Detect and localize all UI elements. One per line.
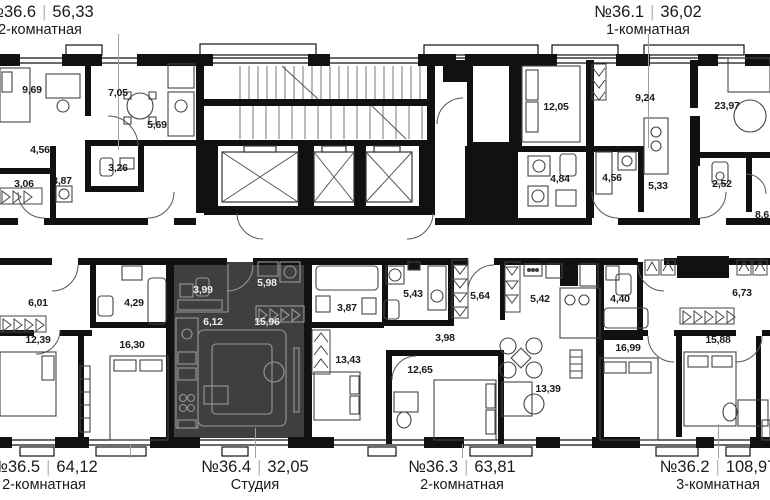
floor-plan: №36.6|56,33 2-комнатная №36.1|36,02 1-ко…: [0, 0, 770, 500]
label-divider: |: [36, 3, 52, 21]
apartment-label-36-5: №36.5|64,12 2-комнатная: [0, 458, 98, 494]
room-area-label: 4,84: [550, 173, 570, 185]
label-divider: |: [40, 458, 56, 476]
apartment-type: 2-комнатная: [0, 22, 94, 39]
apartment-label-36-6: №36.6|56,33 2-комнатная: [0, 3, 94, 39]
apartment-region-36-5[interactable]: [0, 265, 166, 445]
leader-line: [130, 444, 131, 458]
apartment-region-36-2[interactable]: [604, 265, 770, 445]
apartment-area: 64,12: [56, 458, 97, 476]
apartment-type: 3-комнатная: [660, 477, 770, 494]
apartment-area: 32,05: [267, 458, 308, 476]
apartment-area: 36,02: [660, 3, 701, 21]
apartment-area: 56,33: [52, 3, 93, 21]
apartment-number: №36.3: [408, 458, 458, 476]
apartment-number: №36.5: [0, 458, 40, 476]
apartment-region-36-6[interactable]: [0, 55, 196, 225]
apartment-label-36-2: №36.2|108,97 3-комнатная: [660, 458, 770, 494]
room-area-label: 12,05: [543, 101, 568, 113]
label-divider: |: [458, 458, 474, 476]
apartment-area: 108,97: [726, 458, 770, 476]
apartment-region-36-3[interactable]: [312, 265, 596, 445]
apartment-type: 2-комнатная: [408, 477, 515, 494]
apartment-label-36-3: №36.3|63,81 2-комнатная: [408, 458, 515, 494]
apartment-number: №36.2: [660, 458, 710, 476]
apartment-region-36-1[interactable]: [592, 55, 770, 225]
label-divider: |: [644, 3, 660, 21]
apartment-number: №36.1: [594, 3, 644, 21]
apartment-number: №36.4: [201, 458, 251, 476]
apartment-type: Студия: [201, 477, 308, 494]
apartment-label-36-1: №36.1|36,02 1-комнатная: [594, 3, 701, 39]
apartment-type: 1-комнатная: [594, 22, 701, 39]
label-divider: |: [710, 458, 726, 476]
apartment-label-36-4: №36.4|32,05 Студия: [201, 458, 308, 494]
elevators: [222, 146, 412, 202]
leader-line: [462, 444, 463, 458]
label-divider: |: [251, 458, 267, 476]
apartment-number: №36.6: [0, 3, 36, 21]
apartment-region-36-4[interactable]: [174, 265, 304, 445]
apartment-area: 63,81: [474, 458, 515, 476]
apartment-type: 2-комнатная: [0, 477, 98, 494]
